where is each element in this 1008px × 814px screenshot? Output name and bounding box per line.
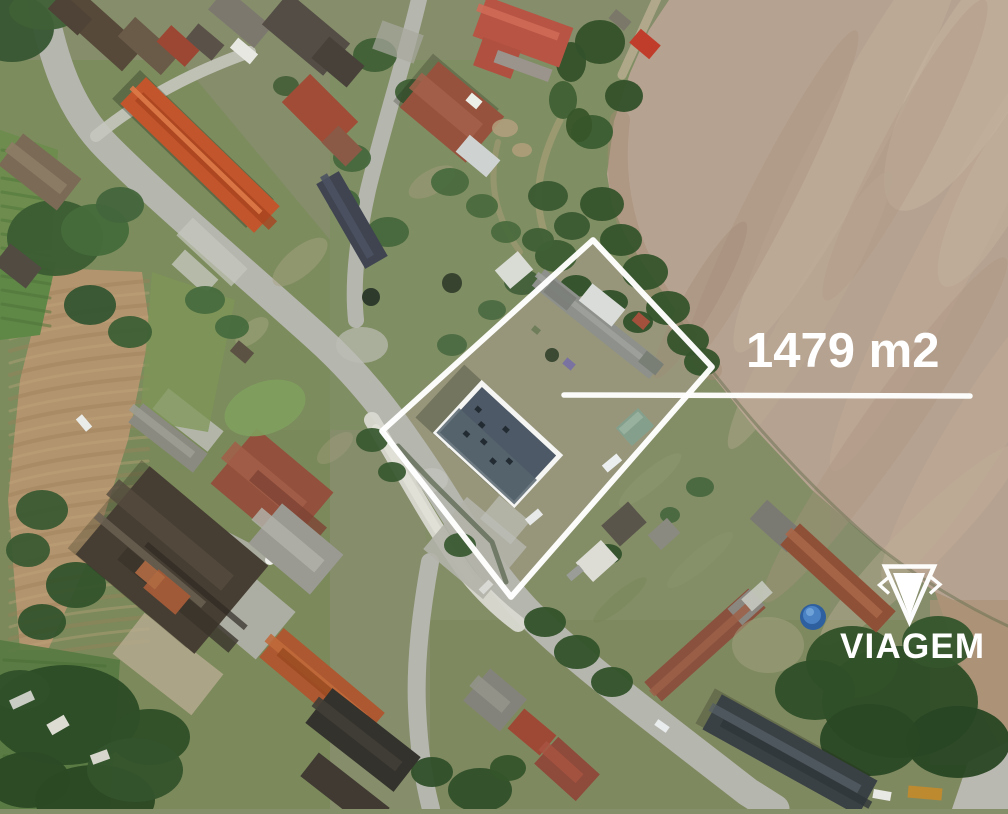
svg-text:VIAGEM: VIAGEM (840, 627, 985, 666)
svg-text:1479 m2: 1479 m2 (746, 324, 939, 378)
